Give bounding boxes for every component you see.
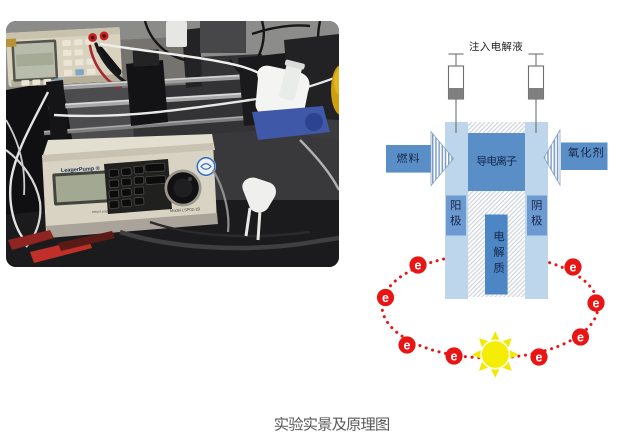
- svg-text:e: e: [404, 339, 411, 353]
- svg-text:e: e: [593, 297, 600, 311]
- svg-text:e: e: [536, 351, 543, 365]
- svg-text:e: e: [570, 261, 577, 275]
- svg-text:e: e: [451, 350, 458, 364]
- svg-text:e: e: [382, 291, 389, 305]
- svg-text:e: e: [577, 331, 584, 345]
- svg-text:e: e: [415, 259, 422, 273]
